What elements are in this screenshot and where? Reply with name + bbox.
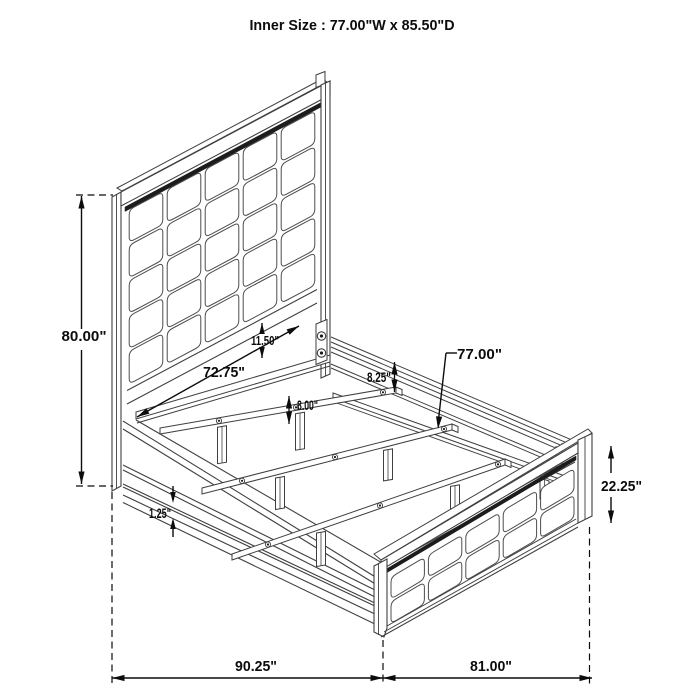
svg-text:8.25": 8.25" xyxy=(367,369,391,385)
svg-text:81.00": 81.00" xyxy=(470,658,512,675)
svg-text:1.25": 1.25" xyxy=(149,505,171,521)
svg-text:11.50": 11.50" xyxy=(251,333,279,348)
svg-text:8.00": 8.00" xyxy=(297,397,318,413)
svg-text:72.75": 72.75" xyxy=(203,364,245,381)
svg-text:22.25": 22.25" xyxy=(601,478,642,495)
svg-text:90.25": 90.25" xyxy=(235,658,277,675)
svg-text:80.00": 80.00" xyxy=(62,328,107,345)
svg-text:Inner Size : 77.00"W x 85.50"D: Inner Size : 77.00"W x 85.50"D xyxy=(249,18,454,34)
svg-text:77.00": 77.00" xyxy=(457,346,502,363)
